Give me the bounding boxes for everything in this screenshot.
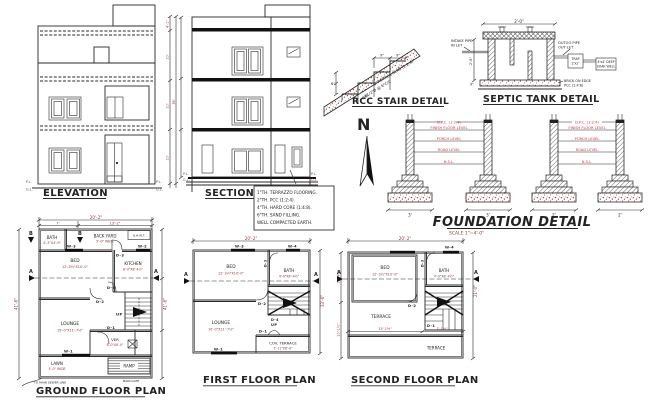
window-label: W-2 — [138, 245, 147, 249]
gf-dim-left: 41'-6" — [14, 298, 19, 310]
room-label-bed: BED — [70, 258, 80, 264]
tread-dim: 9" — [396, 54, 400, 58]
gf-dim-top: 20'-2" — [90, 215, 103, 220]
foundation-panel: D.P.C. (1:2:4) FINISH FLOOR LEVEL PORCH … — [392, 100, 650, 238]
section-openings — [202, 47, 302, 173]
notes-panel: 1"TH. TERRAZZO FLOORING. 2"TH. PCC (1:2:… — [250, 170, 336, 232]
note-line: 1"TH. TERRAZZO FLOORING. — [257, 190, 317, 195]
footing-dim: 3' — [408, 213, 412, 218]
room-dim-terrace: 7'-11"X6'-9" — [273, 347, 293, 351]
window-label: W-1 — [214, 348, 223, 352]
door-label: D-2 — [96, 300, 104, 304]
section-a-marker: A — [337, 270, 341, 276]
elevation-panel: 4'-1" 10' 10' 10' 38' P.L. G.L. P.L. G.L… — [18, 2, 178, 200]
door-label: D-1 — [259, 330, 267, 334]
brick-label: BRICK ON EDGE — [564, 79, 591, 83]
sf-inner-dims: 13'-1½" 7'-1½" — [346, 327, 465, 333]
riser-dim: 6" — [331, 82, 335, 86]
ff-dim-side: 33'-6" — [320, 295, 325, 307]
section-a-marker: A — [184, 272, 188, 278]
note-line: 6"TH. SAND FILLING. — [257, 213, 300, 218]
ffl-label: FINISH FLOOR LEVEL — [568, 126, 605, 130]
section-b-marker: B — [29, 231, 33, 237]
elev-dim-1: 10' — [166, 54, 170, 59]
gl-label: G.L. — [26, 188, 33, 192]
gl-label: G.L. — [183, 178, 190, 182]
septic-depth-dim: 2'-6" — [469, 57, 473, 65]
room-dim-bed: 12'-3½"X10'-0" — [372, 273, 398, 277]
room-label-terrace-bottom: TERRACE — [426, 346, 446, 351]
sf-dim-left-b: 10'-1½" — [337, 323, 341, 337]
foundation-labels-right: D.P.C. (1:2:4) FINISH FLOOR LEVEL PORCH … — [568, 120, 605, 164]
dpc-label: D.P.C. (1:2:4) — [575, 120, 599, 124]
footing — [388, 114, 432, 202]
elevation-title: ELEVATION — [43, 188, 108, 199]
road-label: ROAD LEVEL — [438, 148, 461, 152]
pl-label: P.L. — [183, 172, 189, 176]
room-dim-bath: 4'-0"X8'-4½" — [434, 275, 455, 279]
sf-dimensions: 20'-2" 21'-0" 11'-4½" 10'-1½" — [337, 236, 479, 360]
footing-dim: 2' — [618, 213, 622, 218]
room-dim-lounge: 10'-0"X11'-7½" — [57, 329, 83, 333]
dpc-label: D.P.C. (1:2:4) — [437, 120, 461, 124]
second-floor-panel: 20'-2" 21'-0" 11'-4½" 10'-1½" A A BE — [333, 235, 485, 390]
porch-label: PORCH LEVEL — [575, 137, 600, 141]
inlet-label: INTAKE PIPE — [451, 39, 473, 43]
door-label: D-3 — [264, 260, 268, 267]
door-label: D-2 — [258, 302, 266, 306]
room-label-backyard: BACK YARD — [94, 234, 117, 239]
up-label: UP — [116, 312, 123, 317]
gl-label: G.L. — [156, 188, 163, 192]
ff-dimensions: 20'-2" 33'-6" — [191, 236, 325, 355]
north-arrow-light-half — [360, 136, 367, 186]
room-dim-backyard: 5'-0" WIDE — [96, 240, 114, 244]
gf-dim-seg-l: 7' — [56, 221, 59, 225]
elev-dim-total: 38' — [172, 99, 176, 104]
room-label-bath: BATH — [47, 235, 58, 240]
room-dim-ver: 8'-0"X6'-0" — [107, 343, 124, 347]
nsl-label: N.S.L. — [582, 160, 592, 164]
elev-dim-top: 4'-1" — [166, 20, 170, 28]
sewer-label: TO MAIN SEWER LINE — [33, 381, 66, 385]
gf-dim-seg-r: 13'-2" — [110, 221, 121, 225]
door-label: D-3 — [421, 260, 425, 267]
pl-label: P.L. — [26, 180, 32, 184]
septic-panel: 2'-0" 2'-6" 9" INTAKE PIPE IN LET OUTGO … — [450, 18, 650, 112]
sf-dim-top: 20'-2" — [399, 236, 412, 241]
north-arrow: N — [345, 112, 387, 190]
outlet-label: OUTGO PIPE — [558, 41, 581, 45]
second-floor-title: SECOND FLOOR PLAN — [351, 375, 479, 386]
porch-label: PORCH LEVEL — [437, 137, 462, 141]
room-label-terrace-left: TERRACE — [370, 314, 391, 320]
pcc-label: PCC (1:4:8) — [564, 84, 584, 88]
room-dim-lounge: 10'-0"X11'-7½" — [208, 328, 234, 332]
door-label: D-2 — [408, 304, 416, 308]
soakwell-label-2: SOAK WELL — [597, 65, 616, 69]
up-label: UP — [271, 323, 277, 327]
first-floor-panel: 20'-2" 33'-6" A A BED 12'-3½"X10'-0" BAT… — [183, 235, 333, 390]
elev-dim-3: 10' — [166, 155, 170, 160]
room-label-kitchen: KITCHEN — [124, 261, 141, 266]
room-label-bed: BED — [226, 264, 236, 270]
inlet-label-2: IN LET — [451, 44, 463, 48]
elevation-windows — [49, 97, 123, 182]
road-label: ROAD LEVEL — [576, 148, 599, 152]
trap-label: TRAP — [570, 57, 579, 61]
septic-top-dim: 2'-0" — [514, 19, 524, 24]
section-a-marker: A — [474, 270, 478, 276]
ff-stairs — [268, 291, 310, 315]
room-label-ver: VER — [111, 337, 119, 342]
blueprint-sheet: 4'-1" 10' 10' 10' 38' P.L. G.L. P.L. G.L… — [0, 0, 650, 400]
room-label-lawn: LAWN — [51, 361, 63, 366]
sf-dim-bot-a: 13'-1½" — [378, 327, 392, 331]
ramp-label: RAMP — [123, 364, 135, 369]
section-a-marker: A — [314, 272, 318, 278]
window-label: W-1 — [64, 350, 73, 354]
gf-ramp: RAMP MAIN GATE — [108, 358, 150, 383]
window-label: W-3 — [67, 245, 76, 249]
note-line: WELL COMPACTED EARTH. — [257, 220, 312, 225]
gf-stairs — [125, 298, 152, 326]
door-label: D-3 — [116, 254, 124, 258]
section-a-marker: A — [154, 269, 158, 275]
ff-dim-top: 20'-2" — [245, 236, 258, 241]
gf-dim-right: 41'-6" — [163, 298, 168, 310]
sf-section-markers: A A — [337, 270, 479, 282]
outlet-label-2: OUT LET — [558, 46, 574, 50]
room-label-lounge: LOUNGE — [61, 321, 80, 327]
septic-structure — [478, 27, 562, 89]
room-dim-lawn: 5'-0" WIDE — [48, 367, 65, 371]
septic-base-dim: 9" — [470, 83, 474, 87]
door-label: D-1 — [427, 324, 435, 328]
door-label: D-4 — [271, 318, 279, 322]
window-label: W-4 — [288, 245, 297, 249]
room-label-terrace: COV. TERRACE — [269, 341, 297, 346]
room-label-bed: BED — [380, 265, 390, 271]
sf-dim-side: 21'-0" — [473, 285, 478, 297]
soakwell-label: 4'x4' DEEP — [597, 60, 614, 64]
foundation-title: FOUNDATION DETAIL — [433, 215, 592, 230]
ground-floor-title: GROUND FLOOR PLAN — [36, 386, 166, 397]
window-label: W-3 — [235, 245, 244, 249]
room-dim-bath: 4'-3"X4'-9" — [43, 241, 61, 245]
door-label: D-1 — [107, 326, 115, 330]
ff-room-labels: BED 12'-3½"X10'-0" BATH 4'-0"X8'-4½" LOU… — [208, 264, 300, 351]
ohwt-label: O.H.W.T. — [133, 234, 145, 238]
ground-floor-panel: 20'-2" 7' 13'-2" 41'-6" 41'-6" — [12, 212, 182, 400]
section-a-marker: A — [29, 269, 33, 275]
north-arrow-dark-half — [367, 136, 374, 186]
footing — [466, 114, 510, 202]
window-label: W-4 — [445, 246, 454, 250]
room-dim-bath: 4'-0"X8'-4½" — [279, 275, 300, 279]
main-gate-label: MAIN GATE — [123, 379, 140, 383]
note-line: 4"TH. HARD CORE (1:4:8). — [257, 205, 312, 210]
room-dim-kitchen: 8'-0"X8'-4½" — [123, 268, 143, 272]
septic-pipes — [462, 47, 616, 70]
tread-dim: 9" — [380, 54, 384, 58]
note-line: 2"TH. PCC (1:2:4). — [257, 198, 295, 203]
section-b-marker: B — [78, 231, 82, 237]
elevation-dimension-line: 4'-1" 10' 10' 10' 38' — [166, 15, 179, 188]
room-label-bath: BATH — [284, 268, 295, 273]
room-label-bath: BATH — [439, 268, 450, 273]
door-label: D-3 — [107, 286, 115, 290]
ffl-label: FINISH FLOOR LEVEL — [430, 126, 467, 130]
first-floor-title: FIRST FLOOR PLAN — [203, 375, 316, 386]
foundation-labels-left: D.P.C. (1:2:4) FINISH FLOOR LEVEL PORCH … — [430, 120, 467, 164]
elev-dim-2: 10' — [166, 103, 170, 108]
ff-annotations: D-2 D-1 D-3 D-4 UP W-3 W-4 W-1 — [214, 245, 297, 352]
room-label-lounge: LOUNGE — [212, 320, 231, 326]
room-dim-bed: 12'-3½"X10'-0" — [218, 272, 244, 276]
room-dim-bed: 12'-3½"X10'-0" — [62, 265, 88, 269]
nsl-label: N.S.L. — [444, 160, 454, 164]
pl-label: P.L. — [156, 180, 162, 184]
sf-dim-bot-b: 7'-1½" — [436, 327, 448, 331]
trap-size: 2'x2' — [572, 62, 580, 66]
north-label: N — [357, 115, 371, 134]
